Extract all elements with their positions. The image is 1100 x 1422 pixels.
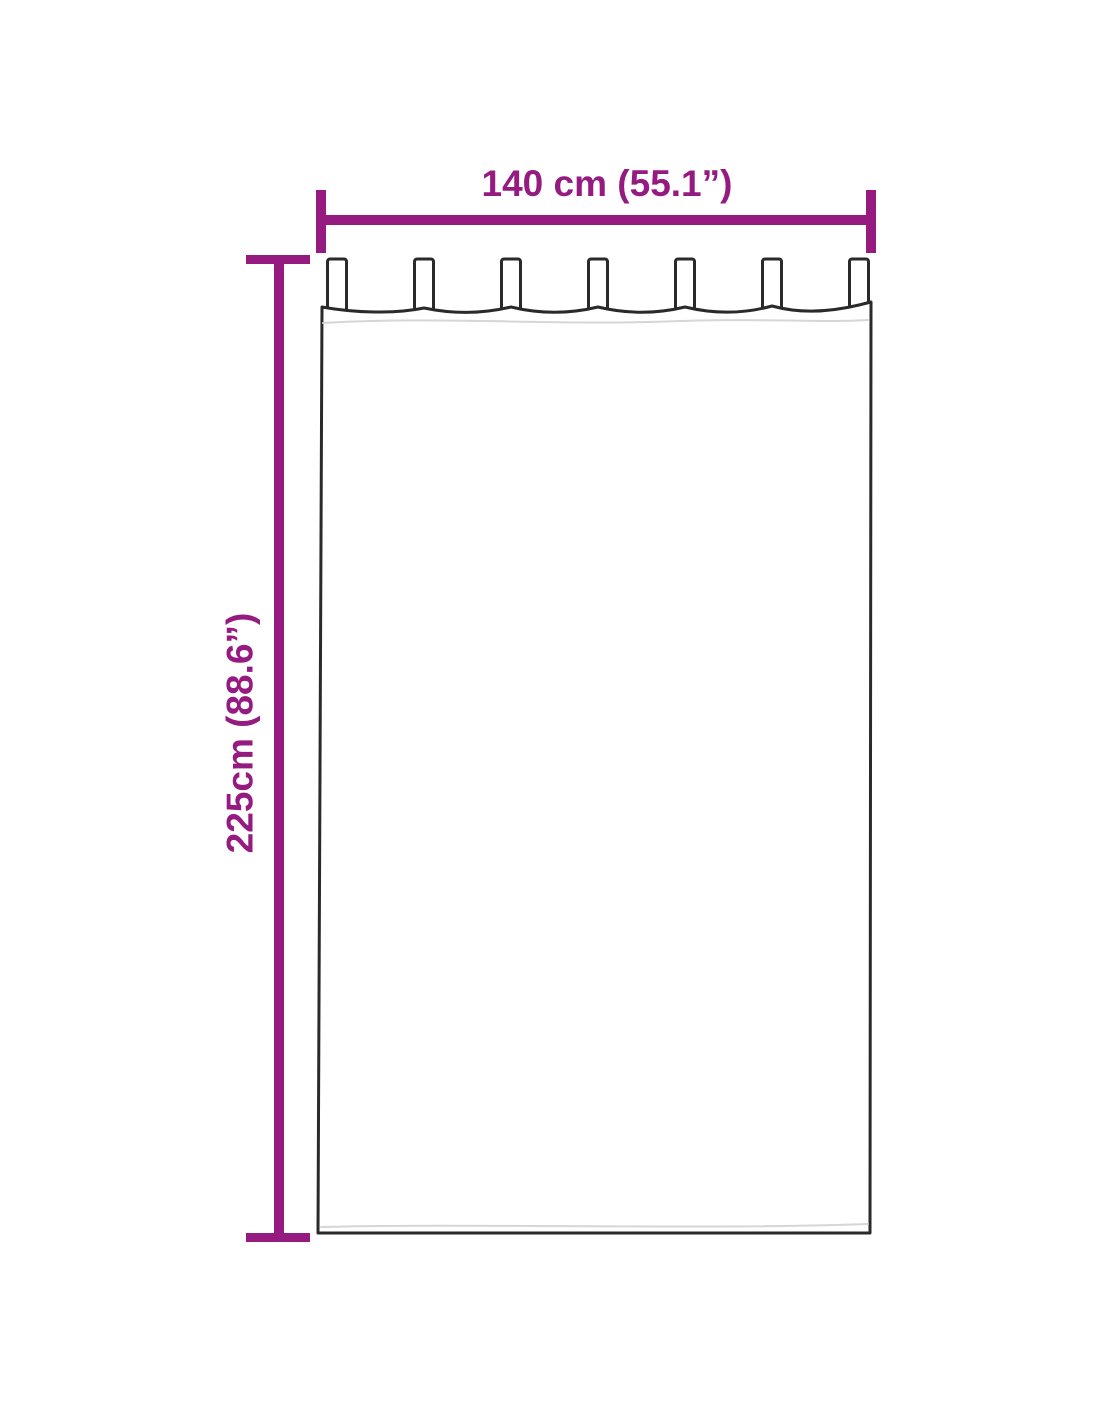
curtain-tabs bbox=[328, 259, 869, 313]
curtain-tab bbox=[676, 259, 695, 313]
product-dimension-diagram: 140 cm (55.1”) 225cm (88.6”) bbox=[0, 0, 1100, 1422]
curtain-panel bbox=[318, 302, 871, 1233]
curtain-tab bbox=[328, 259, 347, 313]
curtain-tab bbox=[589, 259, 608, 313]
curtain-tab bbox=[415, 259, 434, 313]
curtain-illustration bbox=[0, 0, 1100, 1422]
curtain-tab bbox=[502, 259, 521, 313]
